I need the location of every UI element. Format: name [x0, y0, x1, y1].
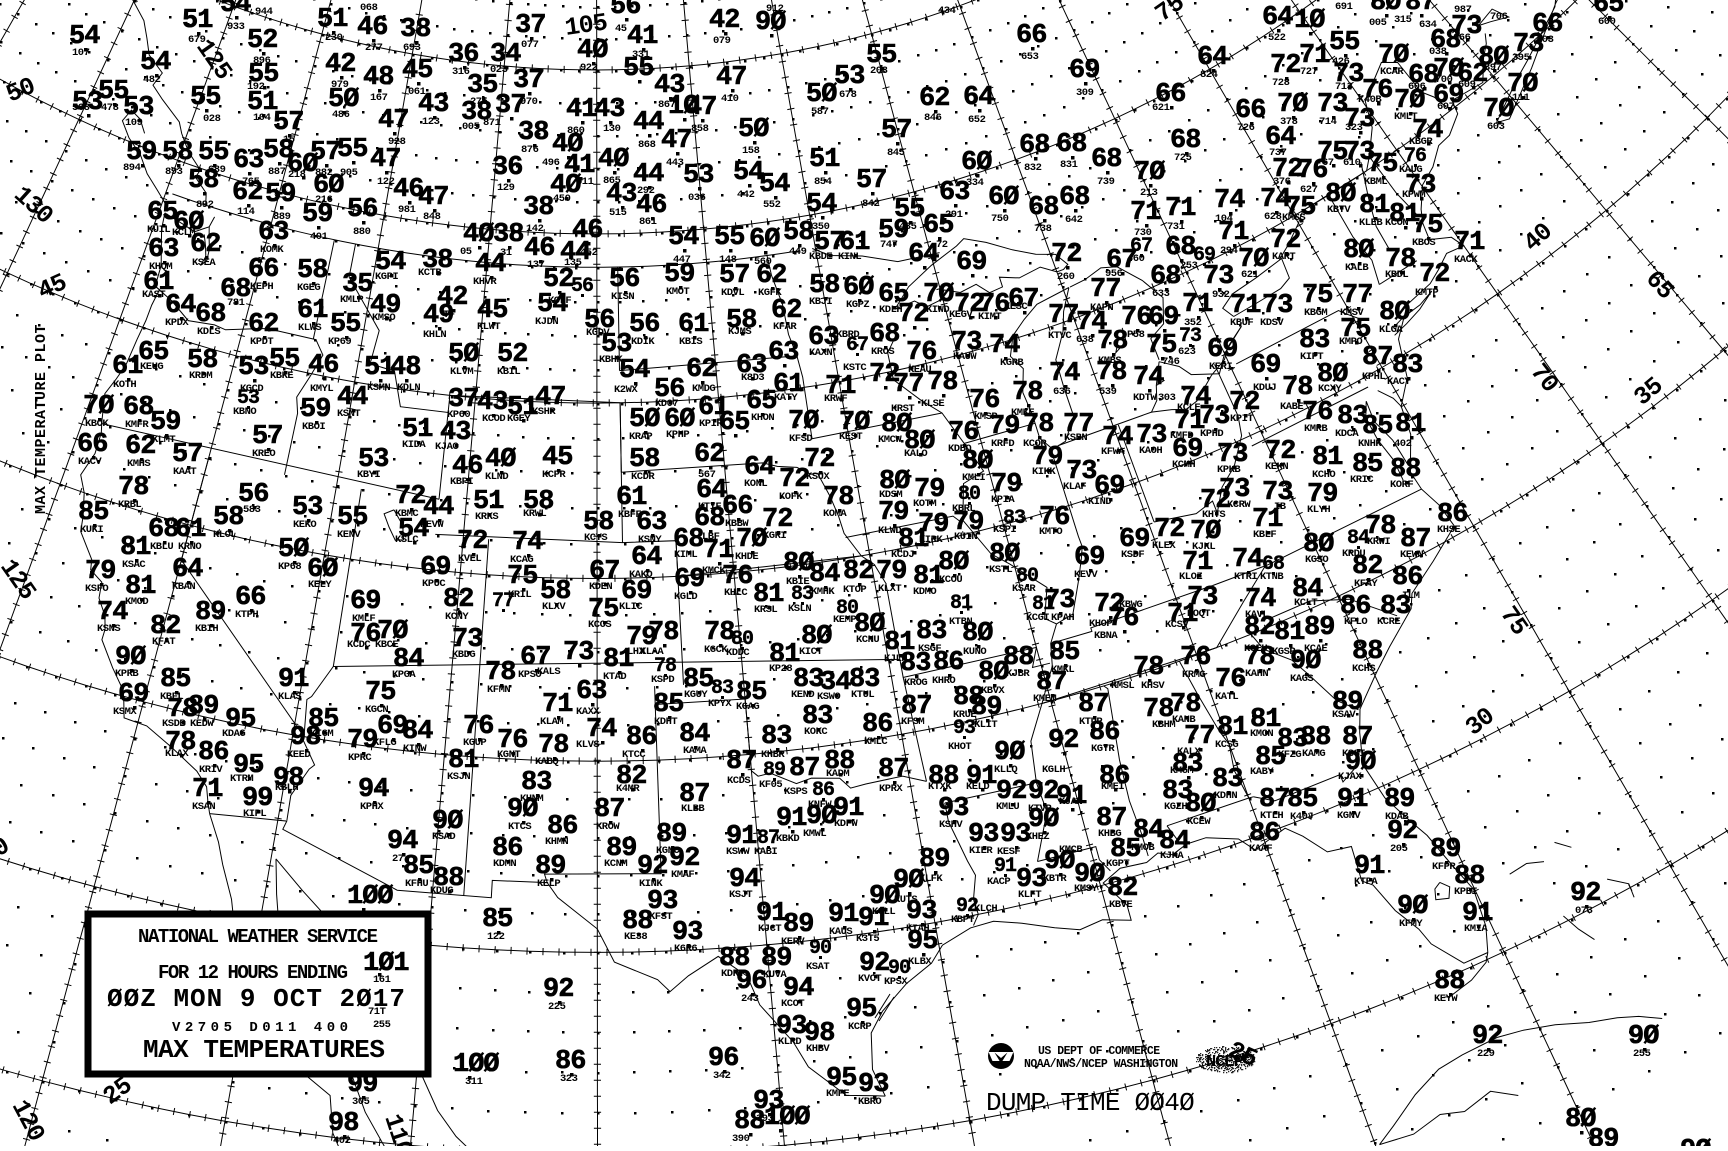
svg-text:KFSD: KFSD [789, 433, 812, 445]
svg-text:KREO: KREO [252, 448, 275, 460]
svg-text:KRDU: KRDU [1342, 548, 1365, 560]
svg-text:260: 260 [1057, 271, 1075, 283]
svg-text:KGZH: KGZH [1164, 801, 1187, 813]
svg-text:KEDW: KEDW [190, 718, 214, 730]
svg-text:515: 515 [609, 207, 627, 219]
svg-text:486: 486 [332, 109, 350, 121]
svg-text:765: 765 [242, 176, 260, 188]
svg-text:725: 725 [1174, 152, 1192, 164]
svg-text:58: 58 [783, 218, 813, 248]
svg-text:72: 72 [898, 300, 928, 330]
svg-text:KFZG: KFZG [1278, 749, 1301, 761]
svg-text:114: 114 [237, 206, 255, 218]
svg-text:48: 48 [390, 353, 420, 383]
svg-text:KERV: KERV [781, 936, 805, 948]
svg-text:KLRD: KLRD [778, 1036, 801, 1048]
svg-text:57: 57 [310, 138, 340, 168]
svg-text:005: 005 [462, 121, 480, 133]
svg-text:KCDS: KCDS [727, 775, 750, 787]
svg-text:KMFR: KMFR [125, 419, 149, 431]
svg-text:47: 47 [716, 63, 746, 93]
svg-text:KMFE: KMFE [826, 1088, 849, 1100]
svg-text:956: 956 [1105, 268, 1123, 280]
svg-text:846: 846 [924, 112, 942, 124]
svg-text:277: 277 [365, 42, 383, 54]
svg-text:KLAA: KLAA [640, 646, 664, 658]
svg-text:334: 334 [966, 177, 984, 189]
svg-text:216: 216 [315, 194, 333, 206]
svg-text:123: 123 [422, 116, 440, 128]
svg-text:KSLC: KSLC [395, 534, 419, 546]
svg-text:068: 068 [360, 2, 378, 14]
svg-text:KBML: KBML [1364, 176, 1387, 188]
svg-text:KMTO: KMTO [1039, 526, 1062, 538]
svg-text:54: 54 [759, 170, 790, 200]
svg-text:KHLN: KHLN [423, 329, 446, 341]
svg-text:KMCK: KMCK [702, 565, 726, 577]
svg-text:KBLF: KBLF [1253, 529, 1276, 541]
svg-text:KGNC: KGNC [656, 845, 680, 857]
svg-text:KSFO: KSFO [85, 583, 108, 595]
svg-text:KDTW: KDTW [1133, 392, 1157, 404]
svg-text:KUNO: KUNO [963, 646, 986, 658]
svg-text:167: 167 [370, 92, 388, 104]
svg-text:KTOP: KTOP [843, 584, 866, 596]
svg-text:74: 74 [1049, 359, 1080, 389]
svg-text:5Ø: 5Ø [738, 115, 769, 145]
svg-text:KEST: KEST [839, 431, 862, 443]
svg-text:KBUF: KBUF [1230, 317, 1253, 329]
svg-text:560: 560 [754, 256, 772, 268]
svg-text:KHOP: KHOP [1089, 618, 1112, 630]
svg-text:KCLT: KCLT [1294, 597, 1317, 609]
svg-text:KCRE: KCRE [1377, 616, 1400, 628]
svg-text:53: 53 [238, 353, 268, 383]
svg-text:KAUW: KAUW [953, 351, 977, 363]
svg-text:KBIS: KBIS [679, 336, 702, 348]
svg-text:KCNM: KCNM [604, 858, 627, 870]
svg-text:912: 912 [766, 3, 784, 15]
svg-text:443: 443 [666, 157, 684, 169]
svg-text:KGNV: KGNV [1337, 810, 1361, 822]
svg-text:72: 72 [936, 239, 948, 251]
svg-text:KBOI: KBOI [302, 421, 325, 433]
svg-text:KLVS: KLVS [576, 739, 599, 751]
svg-text:KMHS: KMHS [127, 458, 150, 470]
svg-text:610: 610 [1343, 157, 1361, 169]
svg-text:KCTB: KCTB [418, 267, 442, 279]
svg-text:KSAR: KSAR [1012, 583, 1036, 595]
svg-text:KMHK: KMHK [811, 586, 835, 598]
svg-text:KBVX: KBVX [981, 685, 1005, 697]
svg-text:627: 627 [1300, 184, 1318, 196]
svg-text:896: 896 [253, 55, 271, 67]
svg-text:243: 243 [741, 993, 759, 1005]
svg-text:KJBR: KJBR [1006, 668, 1030, 680]
svg-text:KP69: KP69 [328, 336, 351, 348]
svg-text:KSDF: KSDF [1121, 549, 1144, 561]
svg-text:KCOS: KCOS [588, 619, 611, 631]
svg-text:KEVW: KEVW [420, 519, 444, 531]
svg-text:KTRI: KTRI [1234, 571, 1257, 583]
svg-text:KDUG: KDUG [430, 885, 453, 897]
svg-text:KCON: KCON [1385, 217, 1408, 229]
svg-text:894: 894 [123, 162, 141, 174]
svg-text:KLBB: KLBB [681, 803, 705, 815]
svg-text:KSPD: KSPD [651, 674, 674, 686]
svg-text:KACY: KACY [1387, 376, 1411, 388]
svg-text:KBTR: KBTR [1043, 873, 1067, 885]
svg-text:KFPR: KFPR [1432, 861, 1456, 873]
svg-text:KHDE: KHDE [735, 551, 758, 563]
svg-text:KPSX: KPSX [884, 976, 908, 988]
svg-text:K6R6: K6R6 [674, 943, 697, 955]
svg-text:142: 142 [526, 223, 544, 235]
svg-text:KTVC: KTVC [1048, 330, 1072, 342]
svg-text:KFAY: KFAY [1354, 578, 1378, 590]
svg-text:51: 51 [182, 6, 213, 36]
svg-text:KUIN: KUIN [954, 531, 977, 543]
svg-text:KBLU: KBLU [150, 541, 173, 553]
svg-text:6Ø: 6Ø [988, 183, 1019, 213]
svg-text:KCDC: KCDC [347, 639, 371, 651]
svg-text:KCSG: KCSG [1215, 739, 1238, 751]
svg-text:KBAN: KBAN [172, 581, 195, 593]
svg-text:KSNS: KSNS [97, 623, 120, 635]
svg-text:KHQM: KHQM [149, 261, 172, 273]
svg-text:511: 511 [576, 176, 594, 188]
svg-text:KOTH: KOTH [113, 379, 136, 391]
svg-text:KLWS: KLWS [298, 322, 321, 334]
svg-text:KSTL: KSTL [989, 564, 1012, 576]
svg-text:KJCT: KJCT [758, 923, 781, 935]
svg-text:KMPO: KMPO [1339, 336, 1362, 348]
svg-text:KLIC: KLIC [619, 601, 643, 613]
svg-text:KLLQ: KLLQ [994, 764, 1017, 776]
svg-text:KPHP: KPHP [666, 429, 689, 441]
svg-text:US DEPT OF COMMERCE: US DEPT OF COMMERCE [1038, 1045, 1160, 1058]
svg-text:255: 255 [1633, 1048, 1651, 1060]
svg-text:KMIA: KMIA [1464, 923, 1488, 935]
svg-text:KMLC: KMLC [864, 736, 888, 748]
svg-text:KEUG: KEUG [140, 361, 163, 373]
svg-text:9Ø: 9Ø [1680, 1136, 1711, 1146]
svg-text:638: 638 [1076, 334, 1094, 346]
svg-text:MAX TEMPERATURES: MAX TEMPERATURES [143, 1035, 385, 1065]
svg-text:KLYH: KLYH [1307, 504, 1330, 516]
svg-text:KAHN: KAHN [1245, 668, 1268, 680]
svg-text:689: 689 [208, 164, 226, 176]
svg-text:434: 434 [938, 5, 956, 17]
svg-text:KBGM: KBGM [1304, 307, 1327, 319]
svg-text:55: 55 [190, 83, 220, 113]
svg-text:KCRP: KCRP [848, 1021, 871, 1033]
svg-text:KTCS: KTCS [508, 821, 531, 833]
svg-text:987: 987 [1454, 4, 1472, 16]
svg-text:NOAA/NWS/NCEP WASHINGTON: NOAA/NWS/NCEP WASHINGTON [1024, 1058, 1178, 1071]
svg-text:KOLF: KOLF [548, 295, 571, 307]
svg-text:KBDG: KBDG [452, 649, 475, 661]
svg-text:52: 52 [247, 26, 277, 56]
svg-text:061: 061 [408, 86, 426, 98]
svg-text:KGAG: KGAG [736, 701, 759, 713]
svg-text:KBVE: KBVE [1109, 899, 1132, 911]
svg-text:68: 68 [1028, 193, 1058, 223]
svg-text:KGLH: KGLH [1042, 764, 1065, 776]
svg-text:KMKE: KMKE [1011, 407, 1034, 419]
svg-text:KLEB: KLEB [1359, 217, 1383, 229]
svg-text:225: 225 [548, 1001, 566, 1013]
svg-text:352: 352 [1184, 317, 1202, 329]
svg-text:KGTR: KGTR [1091, 743, 1115, 755]
svg-text:350: 350 [812, 221, 830, 233]
svg-text:KRST: KRST [891, 403, 914, 415]
svg-text:KAKO: KAKO [629, 569, 652, 581]
svg-text:KJAC: KJAC [435, 441, 459, 453]
svg-text:634: 634 [1419, 19, 1437, 31]
svg-text:861: 861 [639, 216, 657, 228]
svg-text:KSNY: KSNY [638, 534, 662, 546]
svg-text:KBKD: KBKD [776, 833, 799, 845]
svg-text:KLND: KLND [485, 471, 508, 483]
svg-text:KPDT: KPDT [250, 336, 273, 348]
svg-text:KCOD: KCOD [482, 413, 505, 425]
svg-text:KSUX: KSUX [806, 471, 830, 483]
svg-text:KSPS: KSPS [784, 786, 807, 798]
svg-text:KCXY: KCXY [1318, 383, 1342, 395]
svg-text:KIWD: KIWD [926, 304, 949, 316]
svg-text:KCAE: KCAE [1304, 643, 1327, 655]
svg-text:KBKE: KBKE [270, 370, 293, 382]
svg-text:KGUP: KGUP [463, 737, 486, 749]
svg-text:KAXN: KAXN [809, 347, 832, 359]
svg-text:KCHS: KCHS [1352, 663, 1375, 675]
svg-text:83: 83 [711, 677, 733, 700]
svg-text:KOFK: KOFK [779, 491, 803, 503]
svg-text:68: 68 [1019, 131, 1049, 161]
svg-text:KTXK: KTXK [928, 781, 952, 793]
svg-text:KPYX: KPYX [708, 698, 732, 710]
svg-text:54: 54 [668, 223, 699, 253]
svg-text:KBIL: KBIL [497, 366, 520, 378]
svg-text:KAGS: KAGS [1290, 673, 1313, 685]
svg-text:47: 47 [418, 183, 448, 213]
svg-text:401: 401 [310, 231, 328, 243]
svg-text:831: 831 [1060, 159, 1078, 171]
svg-text:865: 865 [603, 175, 621, 187]
svg-text:933: 933 [227, 21, 245, 33]
svg-text:KIKK: KIKK [1032, 466, 1056, 478]
svg-text:41: 41 [566, 95, 597, 125]
svg-text:KPDX: KPDX [165, 317, 189, 329]
svg-text:57: 57 [856, 166, 886, 196]
svg-text:213: 213 [1140, 187, 1158, 199]
svg-text:KBIH: KBIH [195, 623, 218, 635]
svg-text:KAAF: KAAF [1249, 843, 1272, 855]
svg-text:KCMH: KCMH [1172, 459, 1195, 471]
svg-text:KGCN: KGCN [365, 704, 388, 716]
svg-text:47: 47 [370, 145, 400, 175]
svg-text:435: 435 [899, 221, 917, 233]
svg-text:KROW: KROW [596, 821, 620, 833]
svg-text:47: 47 [661, 126, 691, 156]
svg-text:378: 378 [1280, 116, 1298, 128]
svg-text:89: 89 [1304, 613, 1334, 643]
svg-text:KBRD: KBRD [836, 329, 859, 341]
svg-text:69: 69 [1148, 303, 1178, 333]
svg-text:KDVL: KDVL [721, 287, 744, 299]
svg-text:105: 105 [563, 8, 609, 43]
svg-text:255: 255 [373, 1019, 391, 1031]
svg-text:KDLS: KDLS [197, 326, 220, 338]
svg-text:KMOB: KMOB [1131, 842, 1155, 854]
svg-text:KFAR: KFAR [773, 321, 797, 333]
svg-text:KRWI: KRWI [1367, 536, 1390, 548]
svg-text:KLAM: KLAM [540, 716, 563, 728]
svg-text:KFHU: KFHU [405, 878, 428, 890]
svg-text:KEVV: KEVV [1074, 569, 1098, 581]
svg-text:636: 636 [1053, 386, 1071, 398]
svg-text:KAAT: KAAT [173, 466, 196, 478]
svg-text:79: 79 [878, 498, 908, 528]
svg-text:KFLO: KFLO [1344, 616, 1367, 628]
svg-text:KUTS: KUTS [894, 894, 917, 906]
svg-text:868: 868 [638, 139, 656, 151]
svg-text:621: 621 [1241, 269, 1259, 281]
svg-text:316: 316 [452, 66, 470, 78]
svg-text:447: 447 [673, 254, 691, 266]
svg-text:KRWL: KRWL [523, 508, 546, 520]
svg-text:KMCW: KMCW [878, 434, 902, 446]
svg-text:KEGV: KEGV [949, 309, 973, 321]
svg-text:208: 208 [870, 65, 888, 77]
svg-text:KTAD: KTAD [603, 671, 626, 683]
svg-text:KOQT: KOQT [1187, 608, 1210, 620]
svg-text:89: 89 [1588, 1125, 1618, 1146]
svg-text:403: 403 [1536, 34, 1554, 46]
svg-text:628: 628 [1264, 211, 1282, 223]
svg-text:KCLM: KCLM [172, 227, 195, 239]
svg-text:63: 63 [939, 178, 969, 208]
svg-text:K4MR: K4MR [616, 783, 640, 795]
svg-text:KAXX: KAXX [576, 706, 600, 718]
svg-text:KIGM: KIGM [310, 728, 333, 740]
svg-text:148: 148 [719, 254, 737, 266]
svg-text:KRIL: KRIL [508, 589, 531, 601]
svg-text:KCAG: KCAG [510, 554, 533, 566]
svg-text:979: 979 [331, 79, 349, 91]
svg-text:KGNT: KGNT [497, 749, 520, 761]
svg-text:KFSM: KFSM [901, 716, 924, 728]
svg-text:47: 47 [378, 106, 408, 136]
svg-text:568: 568 [72, 102, 90, 114]
svg-text:331: 331 [632, 49, 650, 61]
svg-text:KHMN: KHMN [545, 836, 568, 848]
svg-text:KCYS: KCYS [584, 532, 607, 544]
svg-text:63: 63 [576, 677, 606, 707]
svg-text:KHSE: KHSE [1437, 524, 1460, 536]
svg-text:51: 51 [317, 5, 348, 35]
svg-text:KFST: KFST [649, 911, 672, 923]
svg-text:678: 678 [839, 89, 857, 101]
svg-text:KBWG: KBWG [1119, 599, 1142, 611]
svg-text:KPGA: KPGA [392, 669, 416, 681]
svg-text:82: 82 [843, 557, 873, 587]
svg-text:104: 104 [1215, 213, 1233, 225]
svg-text:KPKB: KPKB [1217, 464, 1241, 476]
svg-text:KLAF: KLAF [1063, 481, 1086, 493]
svg-text:889: 889 [273, 211, 291, 223]
svg-text:FOR 12 HOURS ENDING: FOR 12 HOURS ENDING [158, 962, 348, 984]
svg-text:KLOZ: KLOZ [1179, 571, 1202, 583]
svg-text:KMFD: KMFD [1170, 430, 1193, 442]
svg-text:K3T5: K3T5 [856, 933, 879, 945]
svg-text:KSAD: KSAD [432, 831, 455, 843]
svg-text:KUIL: KUIL [147, 224, 170, 236]
svg-text:KBGR: KBGR [1409, 136, 1433, 148]
svg-text:69: 69 [1250, 351, 1280, 381]
svg-text:845: 845 [887, 147, 905, 159]
svg-text:K40B: K40B [1358, 94, 1382, 106]
svg-text:KFMY: KFMY [1399, 918, 1423, 930]
svg-text:023: 023 [490, 64, 508, 76]
svg-text:KMRB: KMRB [1304, 423, 1328, 435]
svg-text:74: 74 [1133, 363, 1164, 393]
svg-text:452: 452 [580, 247, 598, 259]
svg-text:KPWM: KPWM [1402, 189, 1425, 201]
svg-text:KMLI: KMLI [962, 472, 985, 484]
svg-text:KPBI: KPBI [1454, 886, 1477, 898]
svg-text:KOMA: KOMA [823, 508, 847, 520]
svg-text:86: 86 [1392, 563, 1422, 593]
svg-text:K8D3: K8D3 [741, 372, 764, 384]
svg-text:81: 81 [1395, 410, 1426, 440]
svg-text:KSWW: KSWW [726, 846, 750, 858]
svg-text:KTUP: KTUP [1079, 716, 1102, 728]
svg-text:36: 36 [492, 153, 522, 183]
svg-text:KPSO: KPSO [518, 669, 541, 681]
svg-text:426: 426 [1332, 56, 1350, 68]
svg-text:567: 567 [698, 469, 716, 481]
svg-text:KATL: KATL [1215, 691, 1238, 703]
svg-text:842: 842 [862, 198, 880, 210]
svg-text:KCEU: KCEU [1244, 643, 1267, 655]
svg-text:55: 55 [714, 223, 744, 253]
svg-text:652: 652 [968, 114, 986, 126]
svg-text:92: 92 [1048, 726, 1078, 756]
svg-text:KDCA: KDCA [1335, 428, 1359, 440]
svg-text:583: 583 [243, 504, 261, 516]
svg-text:KSAN: KSAN [192, 801, 215, 813]
svg-text:KSSI: KSSI [1342, 748, 1365, 760]
svg-text:KIMT: KIMT [978, 311, 1001, 323]
svg-text:KSNT: KSNT [337, 408, 360, 420]
svg-text:858: 858 [691, 123, 709, 135]
svg-text:KONL: KONL [744, 478, 767, 490]
svg-text:730: 730 [1134, 227, 1152, 239]
svg-text:KBNA: KBNA [1094, 630, 1118, 642]
svg-text:713: 713 [1335, 81, 1353, 93]
svg-text:KDIK: KDIK [631, 336, 655, 348]
svg-text:KHBG: KHBG [1098, 828, 1121, 840]
svg-text:KGRI: KGRI [763, 530, 786, 542]
svg-text:KRDM: KRDM [189, 370, 212, 382]
svg-text:KP60: KP60 [447, 409, 470, 421]
svg-text:KJLN: KJLN [884, 653, 907, 665]
svg-text:KBMC: KBMC [395, 508, 419, 520]
svg-text:323: 323 [560, 1073, 578, 1085]
svg-text:KLFT: KLFT [1018, 889, 1041, 901]
